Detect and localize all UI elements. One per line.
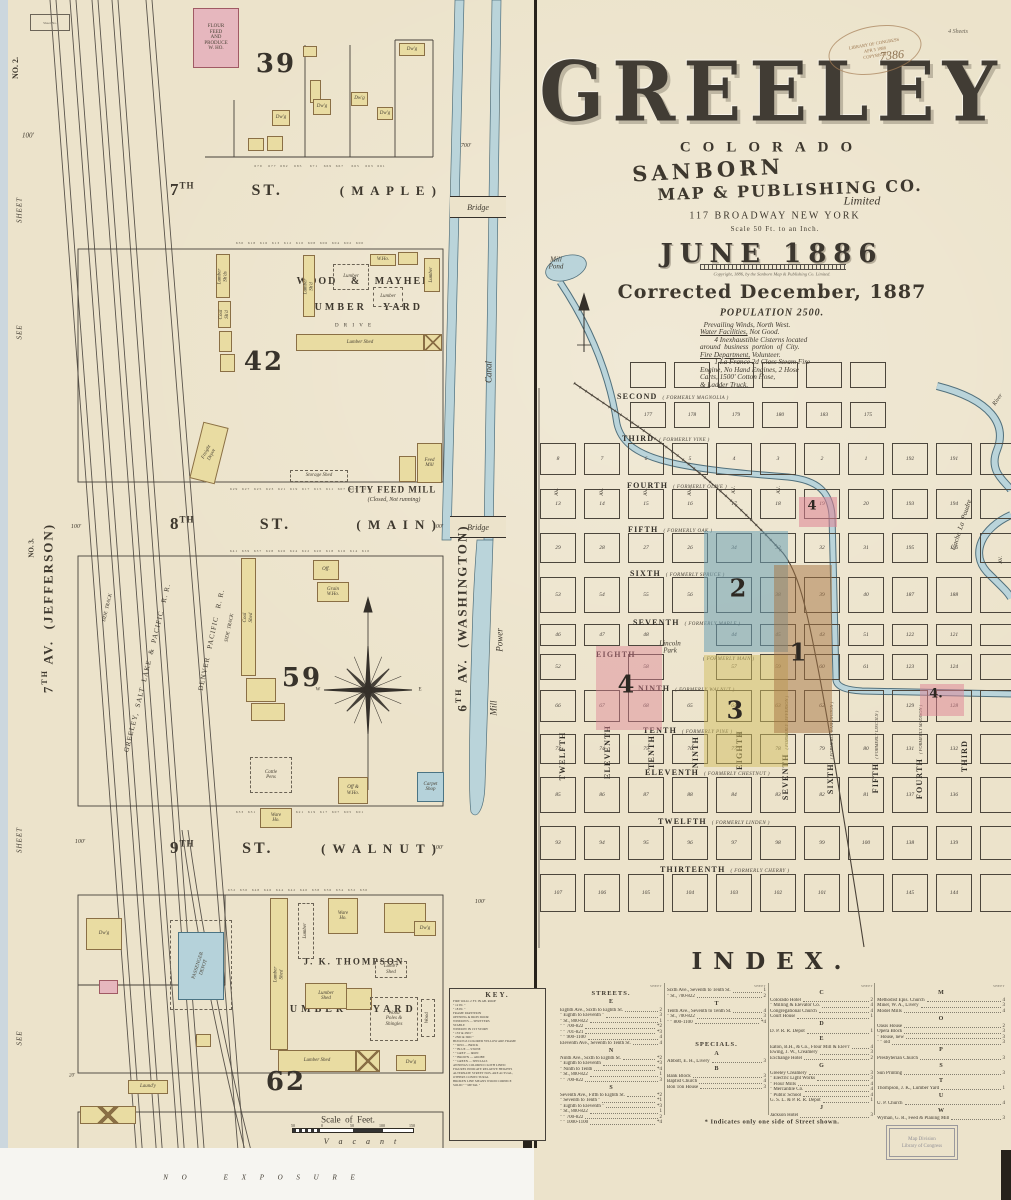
city-block: 28 [584, 533, 620, 563]
building-label: Lumber [303, 923, 309, 939]
building: Lumber Shed [305, 983, 347, 1009]
lot-numbers: 630 618 616 613 612 610 608 606 604 602 … [236, 241, 364, 245]
left-map-label: 20' [69, 1073, 75, 1078]
library-stamp: Map DivisionLibrary of Congress [889, 1128, 955, 1157]
city-block [980, 489, 1011, 519]
title-ornament [700, 264, 846, 270]
city-block-number: 195 [906, 545, 914, 551]
city-block-number: 4 [733, 456, 736, 462]
index-entry: U. P. Church4 [877, 1101, 1005, 1107]
publisher-address: 117 BROADWAY NEW YORK [689, 211, 860, 222]
city-block-number: 88 [687, 792, 693, 798]
city-block: 191 [936, 443, 972, 475]
city-block [674, 362, 710, 388]
city-block: 87 [628, 777, 664, 813]
scale-bar: 50050100150 [292, 1128, 414, 1133]
city-block-number: 32 [819, 545, 825, 551]
building: Dw'g [414, 921, 436, 936]
city-block-number: 13 [555, 501, 561, 507]
city-block-number: 97 [731, 840, 737, 846]
avenue-tick: AV. [600, 488, 606, 496]
city-block-number: 94 [599, 840, 605, 846]
city-block-number: 103 [730, 890, 738, 896]
city-block: 8 [540, 443, 576, 475]
city-block: 20 [848, 489, 884, 519]
city-block [980, 777, 1011, 813]
avenue-tick: AV. [777, 486, 783, 494]
building: Dw'g [351, 92, 368, 106]
city-block: 53 [540, 577, 576, 613]
city-block: 123 [892, 654, 928, 680]
city-block: 47 [584, 624, 620, 646]
building-outline: Storage Shed [290, 470, 348, 482]
index-letter: C [770, 990, 873, 997]
building: W.Ho. [370, 254, 396, 266]
city-block: 31 [848, 533, 884, 563]
city-block: 180 [762, 402, 798, 428]
city-block: 121 [936, 624, 972, 646]
city-block: 93 [540, 826, 576, 860]
city-block-number: 14 [599, 501, 605, 507]
city-block: 179 [718, 402, 754, 428]
city-block: 138 [892, 826, 928, 860]
building-outline: Lumb'r Shed [375, 961, 407, 978]
handwritten-number: 7386 [879, 47, 904, 64]
index-letter: D [770, 1021, 873, 1028]
sheet-number: 2 [730, 574, 747, 603]
city-block-number: 28 [599, 545, 605, 551]
avenue-label: 7TH AV. (JEFFERSON) [41, 523, 55, 693]
building-outline: Lumber [333, 264, 369, 290]
city-block-number: 15 [643, 501, 649, 507]
index-header: STREETS. [560, 990, 662, 997]
left-map-label: 700' [461, 143, 471, 149]
index-column: SHEETSTREETS.EEighth Ave., Sixth to Eigh… [560, 985, 662, 1126]
city-block [980, 690, 1011, 722]
city-block-number: 139 [950, 840, 958, 846]
building-label: Freight Depot [201, 444, 218, 462]
city-block: 124 [936, 654, 972, 680]
left-map-label: 100' [475, 899, 485, 905]
building: Lumber Sh'd [303, 255, 315, 317]
street-label: THIRTEENTH( FORMERLY CHERRY ) [660, 859, 789, 877]
city-title: GREELEY [539, 44, 1005, 140]
left-map-label: D R I V E [335, 323, 373, 328]
building-label: Dw'g [380, 111, 391, 117]
building: Off & W.Ho. [338, 777, 368, 804]
city-block-number: 26 [687, 545, 693, 551]
city-block: 2 [804, 443, 840, 475]
city-block: 88 [672, 777, 708, 813]
city-block: 61 [848, 654, 884, 680]
city-block-number: 145 [906, 890, 914, 896]
city-block-number: 191 [950, 456, 958, 462]
building-outline: Wood Poles & Shingles [370, 997, 418, 1041]
corrected-line: Corrected December, 1887 [618, 281, 927, 303]
population-line: POPULATION 2500. [720, 308, 824, 319]
city-block: 102 [760, 874, 796, 912]
city-block [718, 362, 754, 388]
city-block [980, 577, 1011, 613]
city-block-number: 7 [601, 456, 604, 462]
city-block-number: 46 [555, 632, 561, 638]
city-block: 193 [892, 489, 928, 519]
building: Dw'g [377, 107, 393, 120]
index-entry: D. P. R. R. Depot1 [770, 1029, 873, 1035]
city-block: 3 [760, 443, 796, 475]
index-header: SPECIALS. [667, 1041, 766, 1048]
index-entry: Abbott, E. H., Livery3 [667, 1059, 766, 1065]
building-label: Cattle Pens [265, 770, 277, 781]
building-label: Lumber Sh'd [304, 278, 315, 294]
city-block-number: 86 [599, 792, 605, 798]
building [219, 331, 232, 352]
city-block-number: 104 [686, 890, 694, 896]
building-label: Off & W.Ho. [347, 785, 359, 796]
index-gap [667, 1032, 766, 1039]
left-map-label: 100' [71, 524, 81, 530]
city-block: 52 [540, 654, 576, 680]
scale-number: 150 [409, 1123, 415, 1128]
avenue-tick: AV. [999, 556, 1005, 564]
sheet-number: 3 [727, 696, 744, 725]
city-block-number: 27 [643, 545, 649, 551]
building-label: Lumber Shed [304, 1058, 331, 1064]
lot-numbers: 633 631 629 627 625 621 619 617 607 605 … [236, 810, 364, 814]
city-block-number: 1 [865, 456, 868, 462]
city-block-number: 122 [906, 632, 914, 638]
city-block-number: 136 [950, 792, 958, 798]
index-gap [667, 1025, 766, 1032]
city-block: 56 [672, 577, 708, 613]
city-block: 183 [806, 402, 842, 428]
sheet-number-box: Sheet No. [30, 14, 70, 31]
building [248, 138, 264, 151]
city-block-number: 66 [555, 703, 561, 709]
index-letter: O [877, 1016, 1005, 1023]
left-map-label: SHEET [16, 197, 23, 223]
city-block: 194 [936, 489, 972, 519]
city-block-number: 61 [863, 664, 869, 670]
building-label: Lumber [343, 274, 359, 280]
scale-number: 100 [379, 1123, 385, 1128]
city-block-number: 124 [950, 664, 958, 670]
index-entry: ″ ″ old3 [877, 1040, 1005, 1046]
block-number: 39 [256, 49, 296, 79]
scale-number: 50 [291, 1123, 295, 1128]
city-block [806, 362, 842, 388]
city-block: 177 [630, 402, 666, 428]
city-block-number: 53 [555, 592, 561, 598]
building-outline: Lumber [298, 903, 314, 959]
lot-numbers: 629 627 625 623 621 619 617 615 611 607 … [230, 487, 370, 491]
city-block: 175 [850, 402, 886, 428]
city-block-number: 177 [644, 412, 652, 418]
building: Grain W.Ho. [317, 582, 349, 602]
city-block: 188 [936, 577, 972, 613]
city-block-number: 193 [906, 501, 914, 507]
index-letter: T [667, 1001, 766, 1008]
limited-label: Limited [844, 194, 881, 209]
index-entry: Wyman, G. R., Feed & Planing Mill3 [877, 1116, 1005, 1122]
index-letter: M [877, 990, 1005, 997]
street-label: FIFTH( FORMERLY OAK ) [628, 519, 712, 537]
city-block-number: 101 [818, 890, 826, 896]
city-block-number: 194 [950, 501, 958, 507]
avenue-label: NINTH [685, 736, 703, 768]
index-column: SHEETMMethodist Epis. Church4Miner, W. A… [877, 985, 1005, 1121]
city-block: 1 [848, 443, 884, 475]
building: Dw'g [86, 918, 122, 950]
city-block-number: 87 [643, 792, 649, 798]
building: Dw'g [399, 43, 425, 56]
building: Coal Sh'd [218, 301, 231, 328]
bridge-label: Bridge [450, 196, 506, 218]
key-line: SOLID ″ ″ METAL ″ [453, 1083, 542, 1087]
index-entry: Model Mills4 [877, 1009, 1005, 1015]
canal-label: Power [495, 628, 504, 652]
building [99, 980, 118, 994]
city-block: 54 [584, 577, 620, 613]
avenue-label: 6TH AV. (WASHINGTON) [455, 524, 469, 711]
building: Laund'y [128, 1080, 168, 1094]
north-arrow-icon [577, 294, 591, 352]
building: FLOUR FEED AND PRODUCE W. HO. [193, 8, 239, 68]
city-block-number: 2 [821, 456, 824, 462]
building-label: Lumber Shed [274, 966, 285, 982]
city-block [762, 362, 798, 388]
scan-edge-left [0, 0, 8, 1150]
city-block [980, 533, 1011, 563]
city-block-number: 95 [643, 840, 649, 846]
city-block-number: 18 [775, 501, 781, 507]
avenue-label: FIFTH( FORMERLY LINCOLN ) [865, 711, 883, 794]
block-number: 59 [282, 663, 322, 693]
building-label: Dw'g [406, 1060, 417, 1066]
city-block: 192 [892, 443, 928, 475]
building: Lumber Shed [270, 898, 288, 1050]
left-map-label: LUMBER YARD [305, 303, 423, 314]
compass-rose-icon [324, 598, 412, 790]
city-block: 98 [760, 826, 796, 860]
sheet-number: 4 [618, 670, 635, 699]
building: PASSENGER DEPOT [178, 932, 224, 1000]
building [356, 1050, 380, 1072]
canal-label: Mill [489, 701, 498, 716]
city-block-number: 55 [643, 592, 649, 598]
city-block-number: 183 [820, 412, 828, 418]
building: Dw'g [396, 1055, 426, 1071]
city-block-number: 192 [906, 456, 914, 462]
left-map-label: V a c a n t [324, 1138, 401, 1146]
city-block: 136 [936, 777, 972, 813]
city-block [980, 624, 1011, 646]
city-block [980, 826, 1011, 860]
building-label: Dw'g [420, 926, 431, 932]
city-block-number: 31 [863, 545, 869, 551]
city-block-number: 17 [731, 501, 737, 507]
city-block-number: 138 [906, 840, 914, 846]
index-entry: Court House1 [770, 1014, 873, 1020]
city-block-number: 107 [554, 890, 562, 896]
city-block: 51 [848, 624, 884, 646]
building-label: Wood Poles & Shingles [386, 1011, 403, 1028]
city-block-number: 5 [689, 456, 692, 462]
index-column: SHEETSixth Ave., Seventh to Tenth St.1″ … [667, 985, 766, 1090]
city-block: 122 [892, 624, 928, 646]
city-block: 86 [584, 777, 620, 813]
city-block: 139 [936, 826, 972, 860]
city-block: 103 [716, 874, 752, 912]
building-label: Lumber [429, 267, 435, 283]
city-block: 85 [540, 777, 576, 813]
city-block: 178 [674, 402, 710, 428]
city-block-number: 100 [862, 840, 870, 846]
index-entry: Sun Printing3 [877, 1071, 1005, 1077]
building-label: Lumber [380, 294, 396, 300]
city-block-number: 123 [906, 664, 914, 670]
building-label: Lumber Sh'ds [218, 268, 229, 284]
index-letter: S [560, 1085, 662, 1092]
city-block-number: 54 [599, 592, 605, 598]
city-block: 95 [628, 826, 664, 860]
building-label: Feed Mill [425, 458, 435, 469]
building-label: Coal Shed [243, 611, 254, 624]
building-label: Off. [322, 567, 330, 573]
city-block: 144 [936, 874, 972, 912]
index-letter: S [877, 1063, 1005, 1070]
index-entry: ″ St., 700-8222 [667, 994, 766, 1000]
building-label: Dw'g [99, 931, 110, 937]
city-block: 105 [628, 874, 664, 912]
city-block: 46 [540, 624, 576, 646]
city-block-number: 8 [557, 456, 560, 462]
index-title: INDEX. [691, 950, 852, 974]
index-entry: Presbyterian Church3 [877, 1056, 1005, 1062]
index-letter: J [770, 1105, 873, 1112]
avenue-tick: AV. [555, 488, 561, 496]
building-label: Dw'g [354, 96, 365, 102]
city-block: 107 [540, 874, 576, 912]
left-map-label: NO. 3. [28, 538, 35, 557]
city-block [980, 654, 1011, 680]
city-block: 145 [892, 874, 928, 912]
index-entry: Bon Ton House3 [667, 1085, 766, 1091]
left-map-label: 100' [75, 839, 85, 845]
city-block-number: 16 [687, 501, 693, 507]
building-label: PASSENGER DEPOT [191, 951, 210, 981]
block-number: 42 [244, 347, 284, 377]
building [303, 46, 317, 57]
sheet-number: 4. [929, 687, 943, 702]
city-block: 97 [716, 826, 752, 860]
street-label: FOURTH( FORMERLY OLIVE ) [627, 475, 727, 493]
street-label: THIRD( FORMERLY VINE ) [622, 428, 710, 446]
city-block-number: 187 [906, 592, 914, 598]
index-footnote: * Indicates only one side of Street show… [705, 1120, 840, 1127]
building-label: W.Ho. [377, 257, 389, 263]
city-block-number: 96 [687, 840, 693, 846]
city-block: 7 [584, 443, 620, 475]
avenue-tick: AV. [732, 486, 738, 494]
building-label: Lumb'r Shed [384, 964, 398, 975]
city-block-number: 47 [599, 632, 605, 638]
left-map-label: NO. 2. [12, 57, 20, 79]
city-block-number: 188 [950, 592, 958, 598]
building-label: Grain W.Ho. [327, 587, 339, 598]
city-block-number: 105 [642, 890, 650, 896]
avenue-tick: AV. [688, 488, 694, 496]
index-letter: E [770, 1036, 873, 1043]
city-block-number: 52 [555, 664, 561, 670]
canal-label: Canal [484, 361, 493, 383]
avenue-label: ELEVENTH [597, 725, 615, 779]
building [346, 988, 372, 1010]
building: Ware Ho. [260, 808, 292, 828]
city-block [850, 362, 886, 388]
left-map-label: SEE [16, 1030, 23, 1045]
city-block-number: 93 [555, 840, 561, 846]
index-letter: U [877, 1093, 1005, 1100]
city-block-number: 40 [863, 592, 869, 598]
building-outline: Wood [421, 999, 435, 1037]
city-block: 32 [804, 533, 840, 563]
city-block-number: 144 [950, 890, 958, 896]
left-map-label: E [418, 687, 421, 692]
building: Ware Ho. [328, 898, 358, 934]
index-letter: B [667, 1066, 766, 1073]
copyright-line: Copyright, 1886, by the Sanborn Map & Pu… [713, 272, 830, 277]
city-block: 29 [540, 533, 576, 563]
index-entry: ″ ″ 1000-1100*4 [560, 1120, 662, 1126]
avenue-label: TWELFTH [552, 732, 570, 781]
left-map-label: SEE [16, 324, 23, 339]
city-block: 195 [892, 533, 928, 563]
city-block: 100 [848, 826, 884, 860]
city-block-number: 99 [819, 840, 825, 846]
building [267, 136, 283, 151]
avenue-label: THIRD [954, 740, 972, 772]
city-block: 99 [804, 826, 840, 860]
index-letter: G [770, 1063, 873, 1070]
city-block: 27 [628, 533, 664, 563]
city-block-number: 175 [864, 412, 872, 418]
city-block-number: 178 [688, 412, 696, 418]
building [424, 334, 442, 351]
index-entry: ″ ″ 700-8223 [560, 1078, 662, 1084]
building-label: Carpet Shop [424, 782, 438, 793]
index-entry: Eleventh Ave., Seventh to Tenth St.4 [560, 1041, 662, 1047]
sheet-divider-line [534, 0, 537, 1148]
building: Dw'g [313, 99, 331, 115]
building-outline: Lumber [373, 287, 403, 307]
sanborn-map-sheet: Sheet No. Bridge Bridge GREELEY COLORADO… [0, 0, 1011, 1200]
building [399, 456, 416, 482]
building: Lumber [424, 258, 440, 292]
street-label: SECOND( FORMERLY MAGNOLIA ) [617, 386, 729, 404]
city-block: 40 [848, 577, 884, 613]
building: Lumber Sh'ds [216, 254, 230, 298]
city-block: 55 [628, 577, 664, 613]
city-block-number: 85 [555, 792, 561, 798]
street-label: TWELFTH( FORMERLY LINDEN ) [658, 811, 770, 829]
sheets-note: 4 Sheets [948, 29, 968, 35]
city-block-number: 65 [687, 703, 693, 709]
avenue-label: TENTH [641, 735, 659, 769]
scale-note: Scale 50 Ft. to an Inch. [731, 225, 820, 233]
block-number: 62 [266, 1067, 306, 1097]
city-block-number: 20 [863, 501, 869, 507]
